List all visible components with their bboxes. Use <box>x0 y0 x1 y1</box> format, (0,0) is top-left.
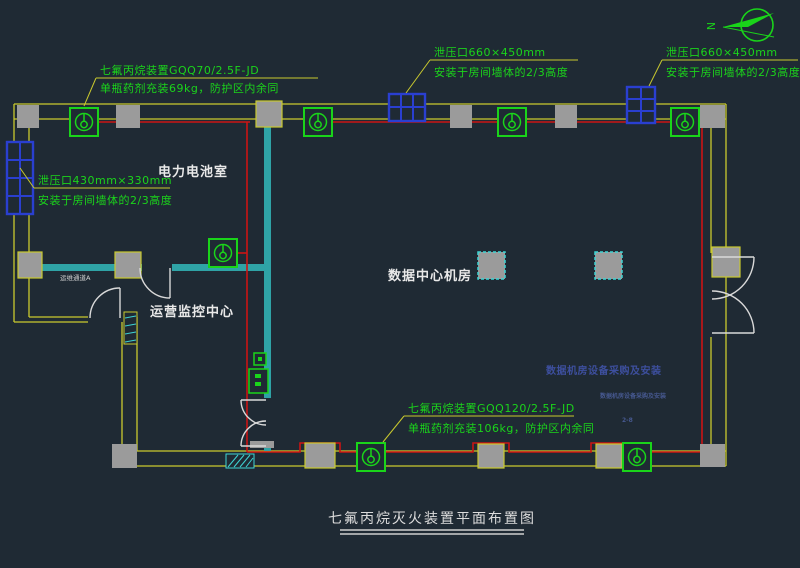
drawing-title: 七氟丙烷灭火装置平面布置图 <box>328 511 536 527</box>
extinguisher-device-icon <box>357 443 385 471</box>
column <box>18 252 42 278</box>
interior-column-dashed <box>478 252 505 279</box>
extinguisher-device-icon <box>623 443 651 471</box>
floor-plan-drawing: N 七氟丙烷装置GQQ70/2.5F-JD 单瓶药剂充装69kg，防护区内余同 … <box>0 0 800 568</box>
vent-top-right <box>627 87 655 123</box>
north-arrow-icon: N <box>704 9 774 41</box>
column <box>112 444 137 468</box>
extinguisher-devices <box>70 108 699 471</box>
extinguisher-device-icon <box>671 108 699 136</box>
annotation-text: 安装于房间墙体的2/3高度 <box>666 65 800 79</box>
extinguisher-device-icon <box>304 108 332 136</box>
xref-tag-2: 2-8 <box>622 417 633 424</box>
outer-walls <box>14 104 726 466</box>
hatched-elements <box>124 312 254 468</box>
room-label-monitor: 运营监控中心 <box>150 304 234 320</box>
column <box>712 247 740 277</box>
annotation-text: 单瓶药剂充装106kg，防护区内余同 <box>408 421 594 435</box>
blue-note: 数据机房设备采购及安装 <box>546 364 662 377</box>
column <box>17 105 39 128</box>
control-panel-icon <box>249 353 268 393</box>
extinguisher-device-icon <box>209 239 237 267</box>
column <box>115 252 141 278</box>
column <box>700 105 725 128</box>
column <box>700 444 725 467</box>
extinguisher-device-icon <box>498 108 526 136</box>
extinguisher-device-icon <box>70 108 98 136</box>
room-label-battery: 电力电池室 <box>158 164 228 180</box>
column <box>596 444 622 468</box>
annotation-top-middle: 泄压口660×450mm 安装于房间墙体的2/3高度 <box>406 46 578 93</box>
drawing-title-block: 七氟丙烷灭火装置平面布置图 <box>328 511 536 534</box>
annotation-top-left: 七氟丙烷装置GQQ70/2.5F-JD 单瓶药剂充装69kg，防护区内余同 <box>84 63 318 106</box>
doors <box>90 257 754 448</box>
door-threshold <box>250 441 274 448</box>
annotation-top-right: 泄压口660×450mm 安装于房间墙体的2/3高度 <box>649 46 800 86</box>
column <box>450 105 472 128</box>
door-corridor <box>140 268 170 298</box>
annotation-text: 安装于房间墙体的2/3高度 <box>434 65 568 79</box>
hatched-sill <box>226 454 254 468</box>
annotation-left: 泄压口430mm×330mm 安装于房间墙体的2/3高度 <box>20 168 172 207</box>
north-letter: N <box>704 22 717 31</box>
annotation-text: 七氟丙烷装置GQQ120/2.5F-JD <box>408 401 575 415</box>
vent-top-middle <box>389 94 425 121</box>
cad-canvas[interactable]: N 七氟丙烷装置GQQ70/2.5F-JD 单瓶药剂充装69kg，防护区内余同 … <box>0 0 800 568</box>
interior-column-dashed <box>595 252 622 279</box>
column <box>478 444 504 468</box>
annotation-bottom-middle: 七氟丙烷装置GQQ120/2.5F-JD 单瓶药剂充装106kg，防护区内余同 <box>383 401 594 442</box>
vent-left <box>7 142 33 214</box>
xref-tag: 数据机房设备采购及安装 <box>600 392 666 400</box>
door-lower-left <box>90 288 120 318</box>
annotation-text: 泄压口660×450mm <box>666 46 778 59</box>
double-door-partition <box>241 400 274 448</box>
column <box>305 443 335 468</box>
annotation-text: 安装于房间墙体的2/3高度 <box>38 193 172 207</box>
column <box>256 101 282 127</box>
annotation-text: 泄压口660×450mm <box>434 46 546 59</box>
structural-columns <box>17 101 740 468</box>
corridor-label: 运维通道A <box>60 273 91 282</box>
annotation-text: 泄压口430mm×330mm <box>38 174 172 187</box>
column <box>116 105 140 128</box>
room-label-datacenter: 数据中心机房 <box>388 268 472 284</box>
column <box>555 105 577 128</box>
annotation-text: 单瓶药剂充装69kg，防护区内余同 <box>100 81 279 95</box>
annotation-text: 七氟丙烷装置GQQ70/2.5F-JD <box>100 63 259 77</box>
